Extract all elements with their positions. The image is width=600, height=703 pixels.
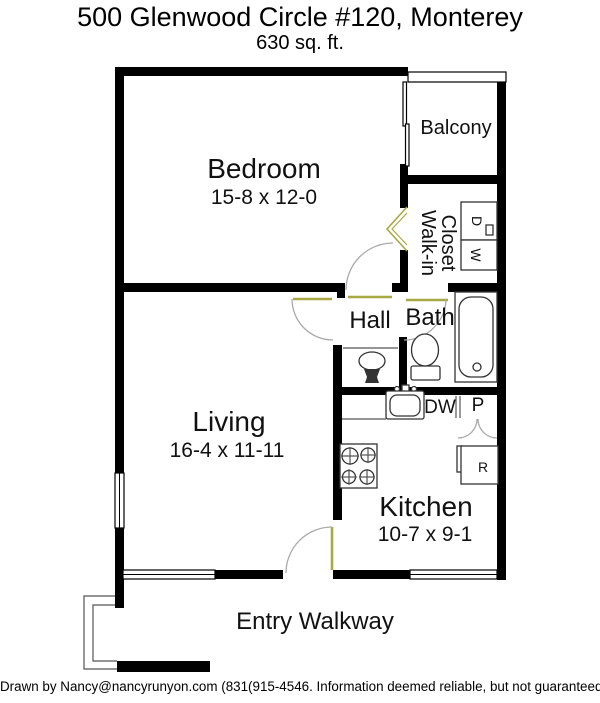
room-label-closet-line1: Walk-in — [417, 210, 439, 276]
room-dims-living: 16-4 x 11-11 — [170, 439, 285, 462]
refrigerator-label: R — [478, 459, 488, 475]
window-living-left — [115, 473, 124, 528]
room-label-balcony: Balcony — [420, 117, 491, 139]
pantry-doors — [458, 419, 497, 438]
room-dims-kitchen: 10-7 x 9-1 — [378, 523, 473, 546]
hall-door — [292, 299, 333, 340]
sliding-glass-door — [403, 82, 409, 166]
room-label-kitchen: Kitchen — [379, 491, 472, 522]
credit-line: Drawn by Nancy@nancyrunyon.com (831(915-… — [0, 679, 600, 694]
pedestal-sink — [359, 352, 385, 383]
room-label-entry-walkway: Entry Walkway — [236, 608, 394, 635]
room-label-closet-line2: Closet — [437, 215, 459, 272]
dishwasher-label: DW — [424, 397, 456, 418]
balcony-railing — [408, 72, 506, 82]
pantry-label: P — [472, 395, 485, 416]
dryer-label: D — [469, 216, 485, 226]
washer: W — [461, 240, 497, 270]
entry-door — [286, 527, 332, 573]
bedroom-door — [346, 243, 393, 297]
floor-plan-page: 500 Glenwood Circle #120, Monterey 630 s… — [0, 0, 600, 703]
stove — [340, 444, 377, 488]
washer-label: W — [468, 248, 484, 262]
dryer: D — [461, 202, 497, 240]
room-label-bedroom: Bedroom — [207, 153, 321, 184]
room-label-bath: Bath — [405, 304, 454, 331]
toilet — [411, 334, 440, 380]
room-label-hall: Hall — [349, 307, 390, 334]
closet-bifold-door — [387, 207, 407, 251]
room-label-living: Living — [192, 406, 265, 437]
room-dims-bedroom: 15-8 x 12-0 — [211, 186, 317, 209]
entry-walkway-outline — [84, 596, 117, 669]
refrigerator: R — [457, 446, 498, 484]
bathtub — [455, 292, 497, 382]
window-kitchen-bottom — [410, 570, 497, 579]
window-living-bottom — [123, 570, 215, 579]
floor-plan-drawing: R DW P D W Bedroom 15-8 x 12-0 Living 16… — [0, 0, 600, 703]
